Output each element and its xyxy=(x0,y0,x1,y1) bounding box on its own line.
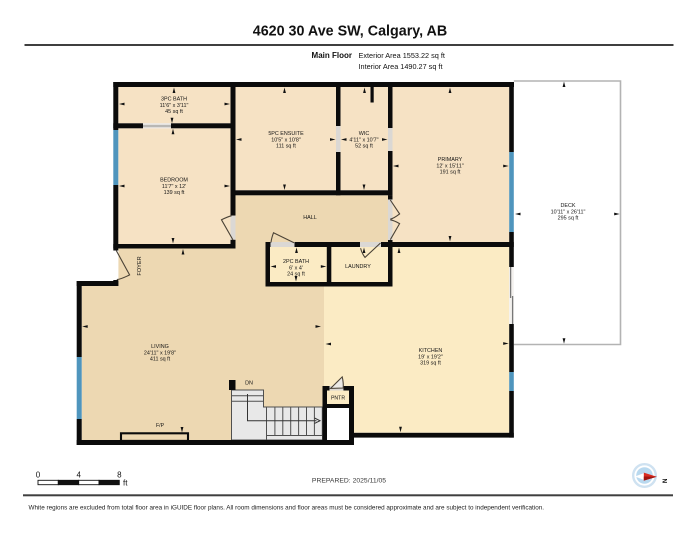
svg-text:N: N xyxy=(661,479,668,484)
svg-text:ft: ft xyxy=(123,479,128,488)
svg-text:LAUNDRY: LAUNDRY xyxy=(345,264,371,270)
svg-text:BEDROOM11'7" x 12'139 sq ft: BEDROOM11'7" x 12'139 sq ft xyxy=(160,178,188,197)
svg-text:Interior Area 1490.27 sq ft: Interior Area 1490.27 sq ft xyxy=(359,62,443,71)
svg-text:F/P: F/P xyxy=(156,423,165,429)
svg-text:FOYER: FOYER xyxy=(137,256,143,275)
svg-text:HALL: HALL xyxy=(303,215,317,221)
svg-text:8: 8 xyxy=(117,471,122,480)
svg-text:PRIMARY12' x 15'11"191 sq ft: PRIMARY12' x 15'11"191 sq ft xyxy=(436,157,463,176)
svg-text:KITCHEN19' x 19'2"319 sq ft: KITCHEN19' x 19'2"319 sq ft xyxy=(418,348,443,367)
svg-text:DN: DN xyxy=(245,381,253,387)
svg-text:PREPARED: 2025/11/05: PREPARED: 2025/11/05 xyxy=(312,478,386,485)
svg-text:Exterior Area 1553.22 sq ft: Exterior Area 1553.22 sq ft xyxy=(359,51,445,60)
svg-text:White regions are excluded fro: White regions are excluded from total fl… xyxy=(29,505,545,512)
svg-text:0: 0 xyxy=(36,471,41,480)
svg-text:4: 4 xyxy=(76,471,81,480)
svg-text:4620 30 Ave SW, Calgary, AB: 4620 30 Ave SW, Calgary, AB xyxy=(253,24,447,40)
svg-text:PNTR: PNTR xyxy=(331,396,345,402)
svg-text:Main Floor: Main Floor xyxy=(312,51,352,60)
